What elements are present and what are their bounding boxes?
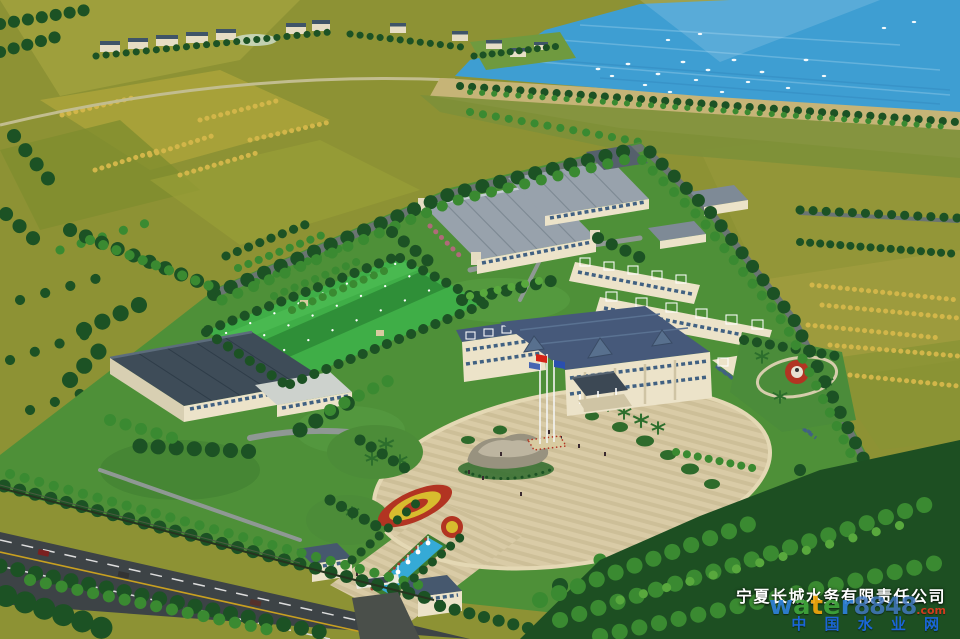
aerial-rendering: 宁夏长城水务有限责任公司 water8848.com 中 国 水 业 网 xyxy=(0,0,960,639)
logo-letter-a: a xyxy=(793,591,811,621)
logo-letter-e: e xyxy=(823,591,841,621)
scene-canvas xyxy=(0,0,960,639)
logo-letter-w: w xyxy=(769,591,793,621)
water8848-logo: water8848.com xyxy=(736,593,946,620)
logo-number: 8848 xyxy=(853,592,916,620)
logo-letter-r: r xyxy=(841,591,854,621)
logo-letter-t: t xyxy=(811,591,823,621)
logo-suffix: .com xyxy=(916,604,946,617)
watermark: 宁夏长城水务有限责任公司 water8848.com 中 国 水 业 网 xyxy=(736,590,946,633)
